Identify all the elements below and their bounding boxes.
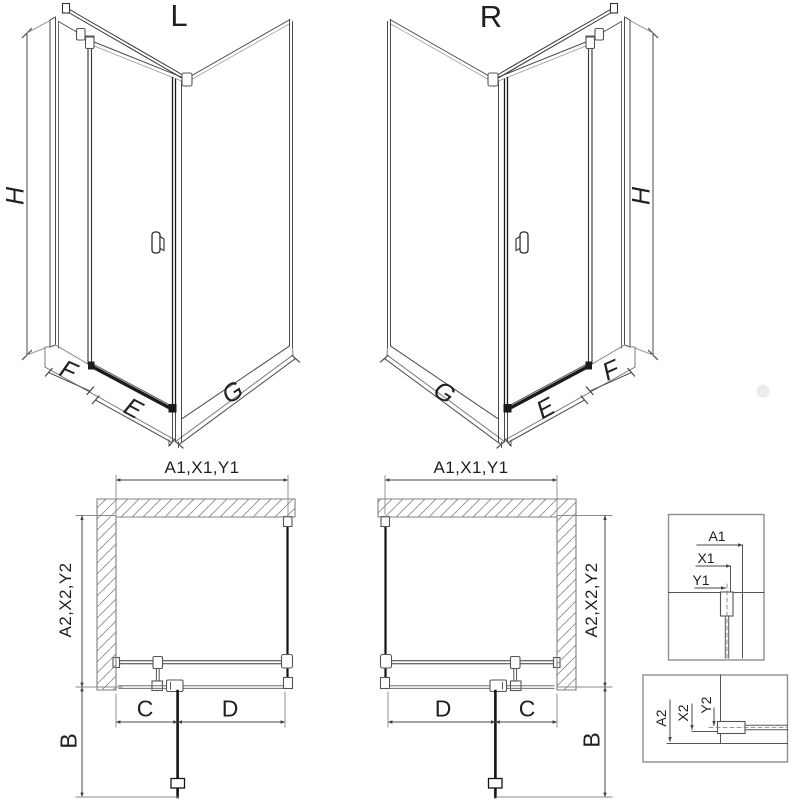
detail-width-x1-label: X1: [697, 550, 714, 566]
view3d-right-height-label: H: [628, 187, 657, 205]
detail-depth-x2-label: X2: [675, 704, 691, 721]
detail-depth-y2-label: Y2: [698, 696, 714, 713]
plan-right-depth-dim-label: A2,X2,Y2: [582, 562, 602, 637]
plan-left-fixed-segment-label: C: [137, 696, 154, 723]
detail-width-y1-label: Y1: [692, 572, 709, 588]
plan-right-walls: [378, 499, 576, 690]
view3d-left-height-label: H: [2, 187, 31, 205]
plan-left-width-dim-label: A1,X1,Y1: [164, 458, 239, 478]
plan-right-fixed-segment-label: C: [519, 696, 536, 723]
plan-left-walls: [97, 499, 295, 690]
detail-width-a1-label: A1: [708, 528, 725, 544]
view3d-right-title: R: [480, 0, 502, 35]
plan-left-side-dims: [76, 516, 178, 798]
drawing-linework: [0, 0, 800, 800]
plan-left-door-swing-label: B: [56, 733, 83, 748]
plan-left-door-segment-label: D: [222, 696, 239, 723]
view3d-left-title: L: [170, 0, 187, 34]
plan-right-linework: [381, 476, 561, 798]
plan-left-depth-dim-label: A2,X2,Y2: [56, 562, 76, 637]
watermark-dot: [757, 385, 770, 398]
plan-right-door-segment-label: D: [435, 696, 452, 723]
detail-depth-a2-label: A2: [653, 709, 669, 726]
plan-right-door-swing-label: B: [579, 732, 606, 747]
plan-right-width-dim-label: A1,X1,Y1: [433, 458, 508, 478]
shower-enclosure-technical-drawing: L H F E G R H F E G A1,X1,Y1 A2,X2,Y2 B …: [0, 0, 800, 800]
